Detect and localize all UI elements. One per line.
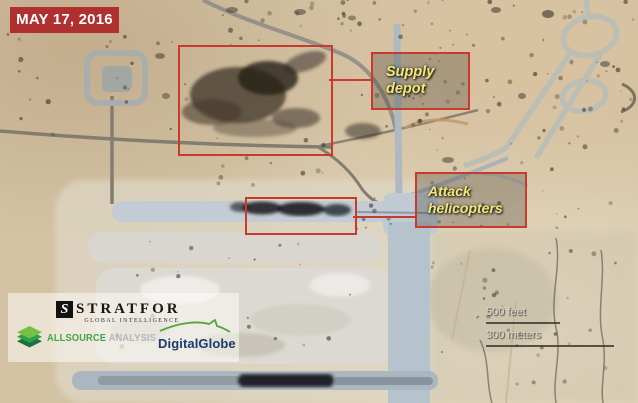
allsource-wordmark-secondary: ANALYSIS: [109, 332, 156, 344]
supply-depot-connector-line: [329, 79, 371, 81]
supply-depot-label: Supply depot: [371, 52, 470, 110]
stratfor-s-icon: S: [56, 301, 73, 318]
scale-meters-line: [486, 345, 614, 347]
scale-feet-label: 500 feet: [486, 306, 526, 318]
scale-meters-label: 300 meters: [486, 329, 541, 341]
annotated-satellite-image: MAY 17, 2016 Supply depot Attack helicop…: [0, 0, 638, 403]
digitalglobe-logo: DigitalGlobe: [158, 319, 236, 351]
digitalglobe-wordmark: DigitalGlobe: [158, 336, 236, 351]
stratfor-wordmark: STRATFOR: [76, 301, 181, 318]
scale-feet-line: [486, 322, 560, 324]
allsource-layers-icon: [16, 326, 43, 350]
digitalglobe-swoosh-icon: [158, 319, 232, 333]
attack-helicopters-connector-line: [353, 216, 415, 218]
supply-depot-highlight-box: [178, 45, 333, 156]
allsource-wordmark-primary: ALLSOURCE: [47, 332, 106, 344]
attack-helicopters-highlight-box: [245, 197, 357, 235]
allsource-analysis-logo: ALLSOURCEANALYSIS: [16, 326, 171, 350]
credits-panel: S STRATFOR GLOBAL INTELLIGENCE ALLSOURCE…: [8, 293, 239, 362]
attack-helicopters-label-text: Attack helicopters: [428, 183, 525, 217]
attack-helicopters-label: Attack helicopters: [415, 172, 527, 228]
date-banner: MAY 17, 2016: [10, 7, 119, 33]
supply-depot-label-text: Supply depot: [386, 64, 468, 98]
